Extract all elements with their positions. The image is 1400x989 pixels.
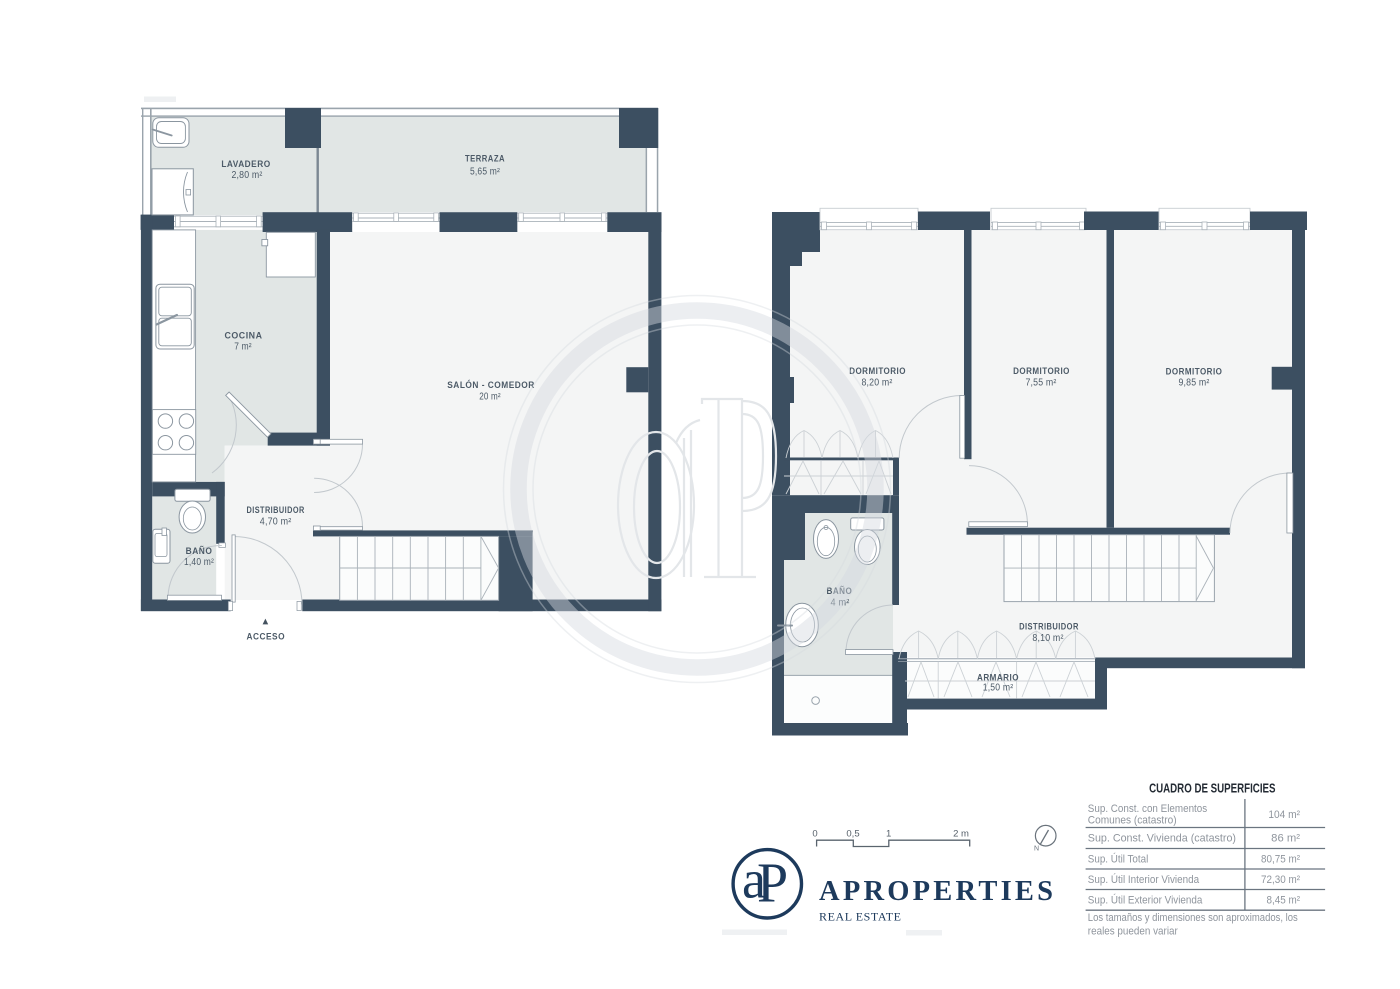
svg-text:Sup. Útil Interior Vivienda: Sup. Útil Interior Vivienda — [1088, 873, 1200, 886]
svg-text:Sup. Const. Vivienda (catastro: Sup. Const. Vivienda (catastro) — [1088, 833, 1236, 845]
svg-text:2 m: 2 m — [953, 829, 969, 840]
svg-text:DISTRIBUIDOR: DISTRIBUIDOR — [1019, 622, 1079, 632]
svg-text:TERRAZA: TERRAZA — [465, 154, 505, 164]
svg-text:Sup. Útil Exterior Vivienda: Sup. Útil Exterior Vivienda — [1088, 894, 1203, 907]
svg-text:COCINA: COCINA — [225, 331, 263, 341]
svg-text:Sup. Const. con Elementos: Sup. Const. con Elementos — [1088, 803, 1208, 815]
svg-text:8,45 m²: 8,45 m² — [1267, 895, 1301, 907]
svg-text:DORMITORIO: DORMITORIO — [849, 366, 906, 376]
svg-text:72,30 m²: 72,30 m² — [1261, 874, 1300, 886]
svg-text:1,40 m²: 1,40 m² — [184, 557, 214, 568]
svg-text:CUADRO DE SUPERFICIES: CUADRO DE SUPERFICIES — [1149, 781, 1276, 796]
svg-text:7 m²: 7 m² — [234, 342, 252, 353]
svg-text:0: 0 — [812, 829, 817, 840]
svg-text:80,75 m²: 80,75 m² — [1261, 854, 1300, 866]
svg-text:DISTRIBUIDOR: DISTRIBUIDOR — [247, 505, 305, 515]
svg-text:1,50 m²: 1,50 m² — [983, 683, 1014, 694]
svg-text:5,65 m²: 5,65 m² — [470, 167, 500, 178]
svg-text:0,5: 0,5 — [846, 829, 859, 840]
svg-text:1: 1 — [886, 829, 891, 840]
svg-text:2,80 m²: 2,80 m² — [232, 170, 263, 181]
svg-text:BAÑO: BAÑO — [186, 546, 213, 556]
svg-text:LAVADERO: LAVADERO — [221, 159, 270, 169]
svg-text:reales pueden variar: reales pueden variar — [1088, 926, 1178, 938]
svg-text:104 m²: 104 m² — [1268, 809, 1300, 821]
svg-text:DORMITORIO: DORMITORIO — [1013, 366, 1070, 376]
svg-text:4,70 m²: 4,70 m² — [260, 517, 292, 528]
svg-text:8,20 m²: 8,20 m² — [862, 378, 893, 389]
svg-text:20 m²: 20 m² — [479, 392, 501, 403]
svg-text:SALÓN - COMEDOR: SALÓN - COMEDOR — [447, 379, 535, 390]
svg-text:86 m²: 86 m² — [1271, 833, 1300, 845]
svg-text:DORMITORIO: DORMITORIO — [1166, 367, 1223, 377]
svg-text:ACCESO: ACCESO — [247, 632, 286, 642]
svg-text:P: P — [757, 853, 788, 915]
svg-text:REAL ESTATE: REAL ESTATE — [819, 910, 904, 924]
svg-text:Comunes (catastro): Comunes (catastro) — [1088, 814, 1177, 826]
svg-text:APROPERTIES: APROPERTIES — [819, 876, 1053, 907]
svg-text:Sup. Útil Total: Sup. Útil Total — [1088, 853, 1149, 866]
svg-text:Los tamaños y dimensiones son: Los tamaños y dimensiones son aproximado… — [1088, 912, 1298, 924]
svg-text:N: N — [1034, 846, 1039, 853]
svg-text:ARMARIO: ARMARIO — [977, 673, 1019, 683]
svg-text:8,10 m²: 8,10 m² — [1032, 633, 1064, 644]
svg-text:9,85 m²: 9,85 m² — [1179, 378, 1210, 389]
svg-text:7,55 m²: 7,55 m² — [1026, 378, 1057, 389]
